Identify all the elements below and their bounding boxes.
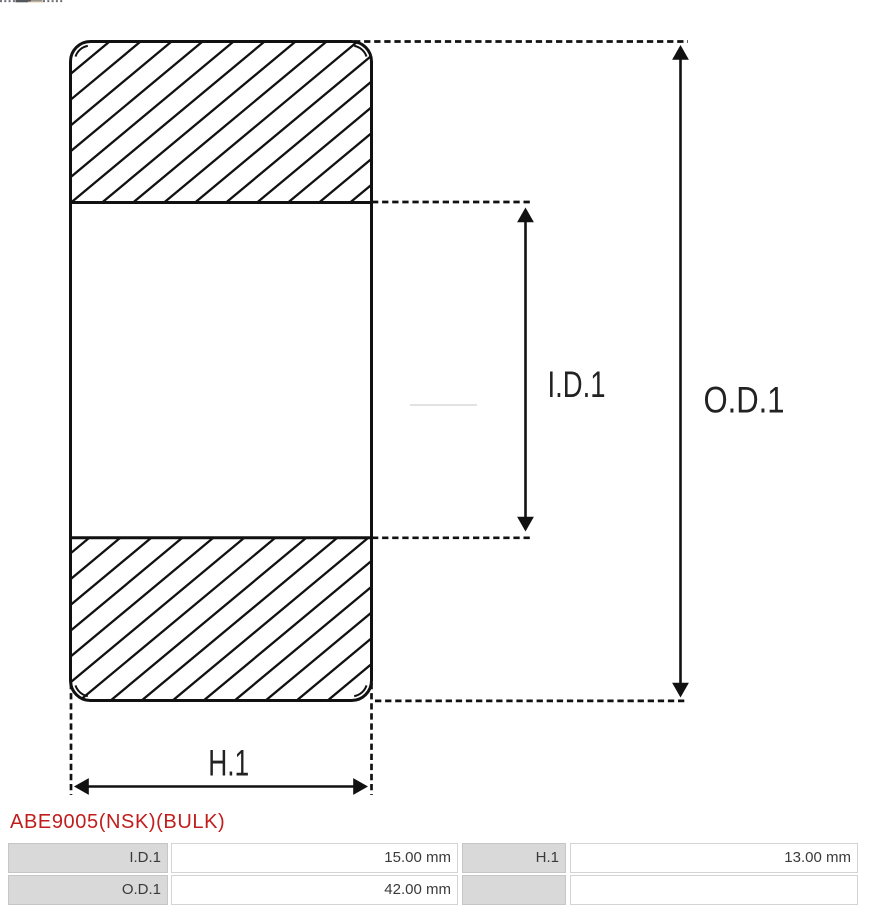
svg-text:O.D.1: O.D.1 xyxy=(704,380,785,421)
svg-text:I.D.1: I.D.1 xyxy=(548,364,606,405)
svg-text:H.1: H.1 xyxy=(208,743,249,784)
